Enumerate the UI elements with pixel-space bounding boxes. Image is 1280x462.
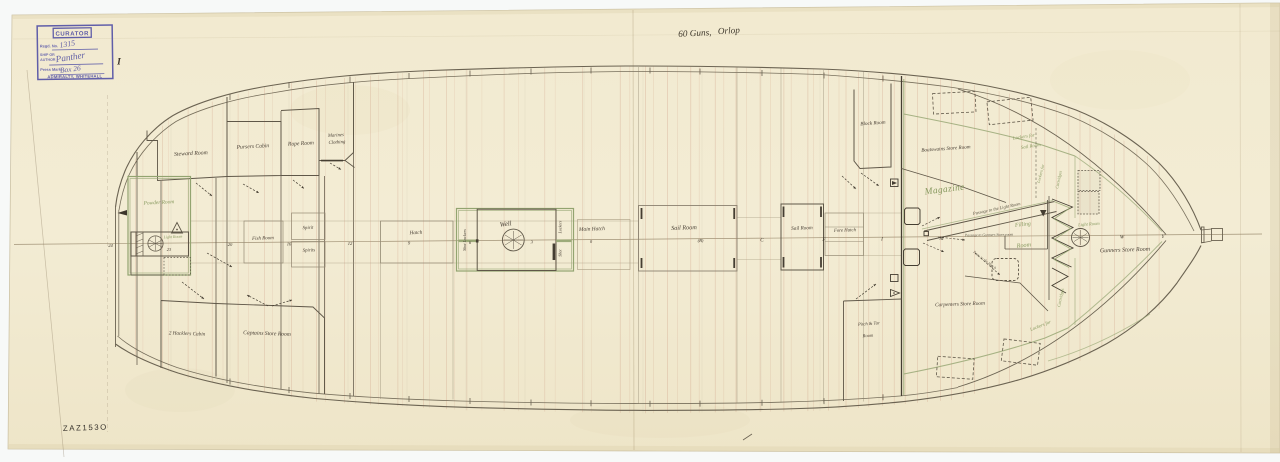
svg-text:24: 24 — [108, 243, 113, 248]
svg-text:Marines: Marines — [327, 133, 344, 139]
svg-text:Fish Room: Fish Room — [251, 236, 274, 242]
svg-text:Shot: Shot — [558, 249, 563, 257]
svg-text:Regd. No.: Regd. No. — [40, 43, 58, 48]
svg-text:CURATOR: CURATOR — [55, 31, 89, 37]
svg-text:Clothing: Clothing — [328, 140, 346, 146]
svg-text:Lockers: Lockers — [558, 220, 563, 234]
svg-text:16: 16 — [287, 242, 292, 247]
svg-text:Sail Room: Sail Room — [671, 224, 697, 232]
svg-text:Shot Lockers: Shot Lockers — [462, 229, 467, 251]
svg-text:Sail Room: Sail Room — [791, 225, 813, 232]
svg-text:Light Room: Light Room — [162, 234, 182, 240]
svg-text:C: C — [760, 238, 764, 244]
svg-text:ADMIRALTY, WHITEHALL: ADMIRALTY, WHITEHALL — [47, 74, 102, 80]
svg-text:Spirit: Spirit — [303, 226, 314, 231]
svg-text:Hatch: Hatch — [409, 230, 423, 236]
svg-text:AUTHOR: AUTHOR — [40, 58, 56, 62]
svg-text:Fore Hatch: Fore Hatch — [833, 228, 857, 234]
svg-text:Press Mark: Press Mark — [40, 67, 62, 72]
svg-text:20: 20 — [228, 242, 233, 247]
svg-text:I: I — [116, 58, 121, 68]
svg-text:M: M — [938, 236, 944, 242]
svg-text:12: 12 — [348, 241, 353, 246]
svg-text:60 Guns,: 60 Guns, — [678, 27, 712, 39]
svg-text:SHIP OR: SHIP OR — [40, 53, 55, 57]
svg-text:Spirits: Spirits — [303, 248, 316, 253]
svg-text:I: I — [880, 237, 883, 243]
svg-text:Room: Room — [861, 333, 874, 339]
svg-text:Orlop: Orlop — [718, 25, 741, 36]
svg-text:Main Hatch: Main Hatch — [578, 226, 605, 233]
svg-text:ZAZ153O: ZAZ153O — [63, 422, 108, 433]
svg-text:W: W — [1120, 235, 1125, 241]
svg-text:(B): (B) — [698, 238, 704, 243]
